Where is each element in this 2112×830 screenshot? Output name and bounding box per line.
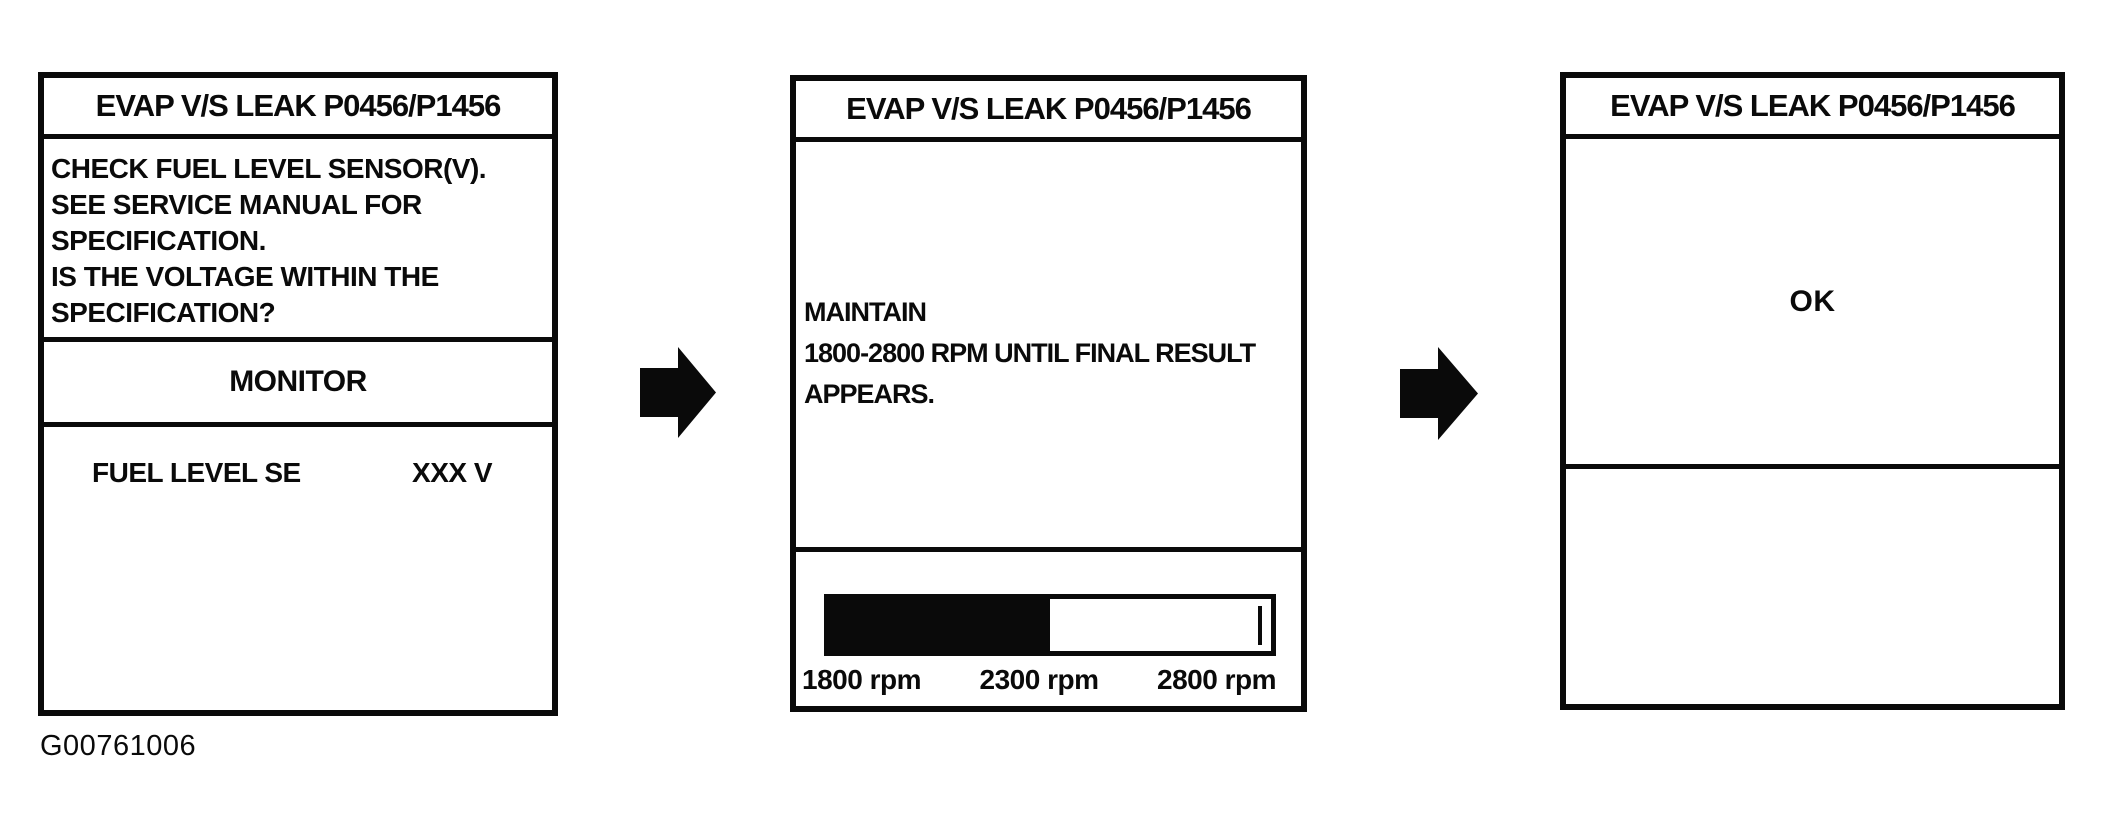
screen1-instructions: CHECK FUEL LEVEL SENSOR(V). SEE SERVICE … <box>44 139 552 342</box>
rpm-scale-label-max: 2800 rpm <box>1157 664 1276 696</box>
instruction-line: 1800-2800 RPM UNTIL FINAL RESULT <box>804 333 1301 374</box>
monitor-section-label: MONITOR <box>44 342 552 427</box>
instruction-line: SEE SERVICE MANUAL FOR <box>51 187 548 223</box>
monitor-param-name: FUEL LEVEL SE <box>92 457 301 489</box>
monitor-value-row: FUEL LEVEL SE XXX V <box>44 427 552 489</box>
screen2-instructions: MAINTAIN 1800-2800 RPM UNTIL FINAL RESUL… <box>796 142 1301 552</box>
instruction-line: SPECIFICATION. <box>51 223 548 259</box>
flow-arrow-icon <box>640 347 716 438</box>
screen2-title: EVAP V/S LEAK P0456/P1456 <box>796 81 1301 142</box>
figure-canvas: EVAP V/S LEAK P0456/P1456 CHECK FUEL LEV… <box>0 0 2112 830</box>
figure-id-caption: G00761006 <box>40 730 196 763</box>
instruction-line: APPEARS. <box>804 374 1301 415</box>
instruction-line: SPECIFICATION? <box>51 295 548 331</box>
screen3-footer-area <box>1566 469 2059 569</box>
rpm-gauge-section: 1800 rpm 2300 rpm 2800 rpm <box>796 552 1301 707</box>
instruction-line: MAINTAIN <box>804 292 1301 333</box>
flow-arrow-icon <box>1400 347 1478 440</box>
rpm-scale-label-min: 1800 rpm <box>802 664 921 696</box>
rpm-gauge-bar <box>824 594 1276 656</box>
rpm-scale-label-mid: 2300 rpm <box>980 664 1099 696</box>
diagnostic-screen-3: EVAP V/S LEAK P0456/P1456 OK <box>1560 72 2065 710</box>
test-result-text: OK <box>1566 139 2059 469</box>
diagnostic-screen-2: EVAP V/S LEAK P0456/P1456 MAINTAIN 1800-… <box>790 75 1307 712</box>
monitor-param-value: XXX V <box>412 457 492 489</box>
screen1-title: EVAP V/S LEAK P0456/P1456 <box>44 78 552 139</box>
diagnostic-screen-1: EVAP V/S LEAK P0456/P1456 CHECK FUEL LEV… <box>38 72 558 716</box>
rpm-gauge-fill <box>829 599 1050 651</box>
rpm-gauge-marker <box>1258 606 1262 644</box>
screen3-title: EVAP V/S LEAK P0456/P1456 <box>1566 78 2059 139</box>
instruction-line: CHECK FUEL LEVEL SENSOR(V). <box>51 151 548 187</box>
rpm-scale-labels: 1800 rpm 2300 rpm 2800 rpm <box>802 664 1276 696</box>
instruction-line: IS THE VOLTAGE WITHIN THE <box>51 259 548 295</box>
